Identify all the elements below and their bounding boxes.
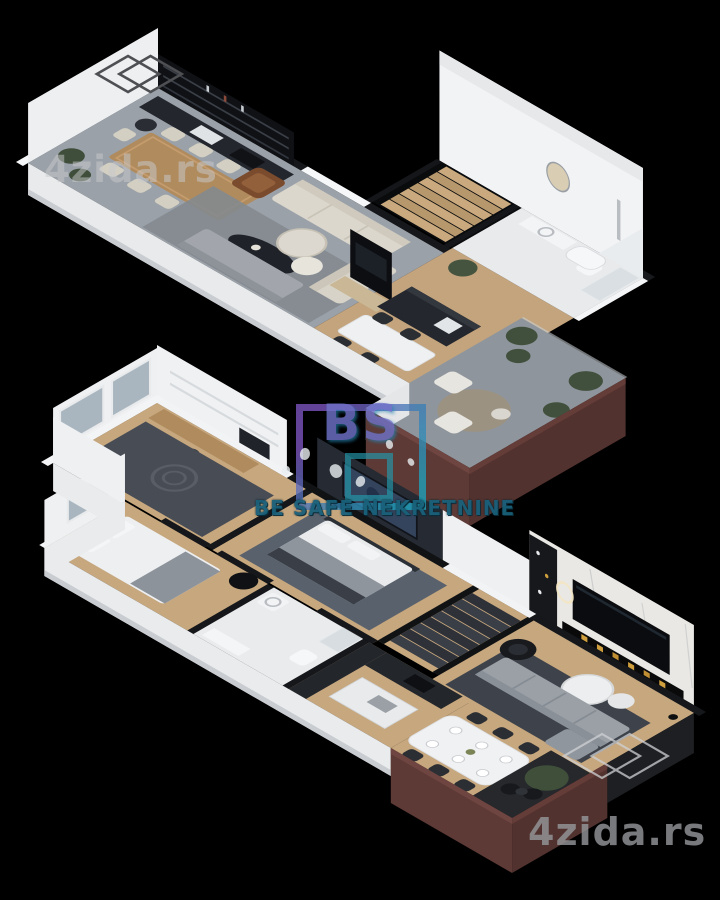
floor-plan-render: 4zida.rs 4zida.rs BS BE SAFE NEKRETNINE — [0, 0, 720, 900]
shower-rail — [617, 199, 620, 241]
logo-caption: BE SAFE NEKRETNINE — [254, 496, 515, 520]
logo-inner-square — [345, 453, 393, 501]
